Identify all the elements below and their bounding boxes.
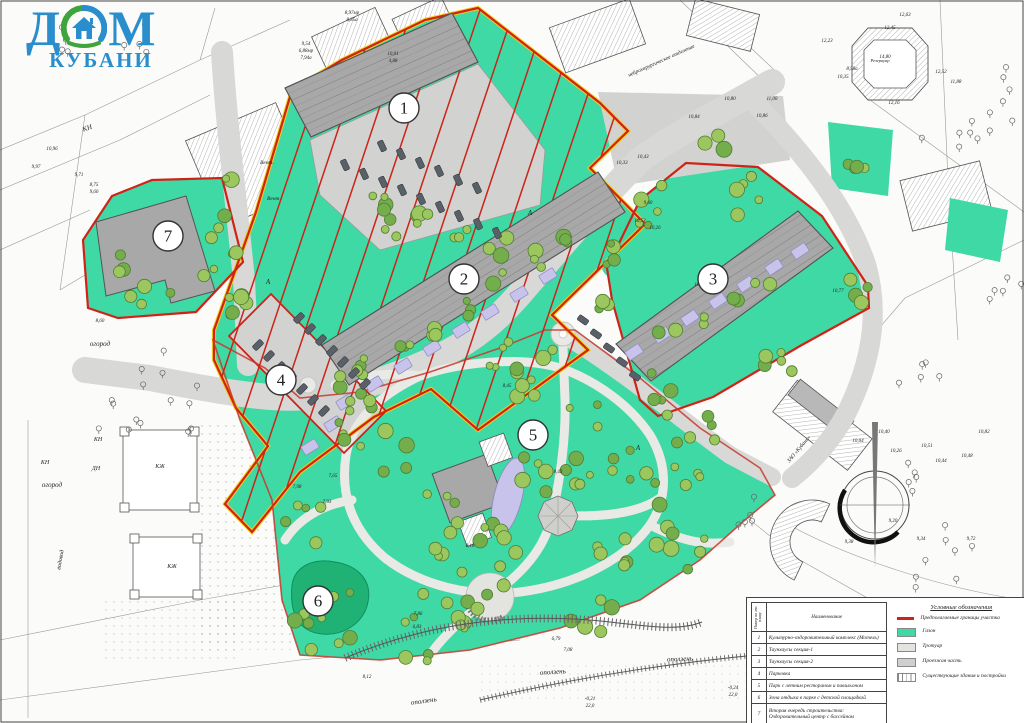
tree-icon	[214, 223, 224, 233]
tree-icon	[482, 589, 493, 600]
tree-icon	[510, 362, 524, 376]
legend-row: 1Культурно-оздоровительный комплекс (Мот…	[752, 632, 887, 644]
cadastral-tree-icon	[138, 420, 143, 428]
tree-crown	[987, 110, 992, 115]
map-label: 8,97мр	[345, 11, 360, 16]
tree-crown	[987, 296, 992, 301]
tree-crown	[952, 548, 957, 553]
row-num: 1	[752, 632, 767, 644]
cadastral-tree-icon	[969, 118, 974, 126]
tree-icon	[234, 289, 249, 304]
cadastral-tree-icon	[987, 296, 992, 304]
site-plan-page: оползеньоползеньоползеньогородогородводо…	[0, 0, 1024, 723]
tree-crown	[161, 348, 166, 353]
cadastral-tree-icon	[1000, 288, 1005, 296]
map-label: 22,0	[729, 693, 738, 698]
tree-crown	[96, 426, 101, 431]
tree-icon	[422, 209, 432, 219]
tree-icon	[652, 326, 665, 339]
legend-row: 7Вторая очередь строительства: Оздоровит…	[752, 704, 887, 723]
tree-icon	[530, 255, 538, 263]
map-label: 14,80	[879, 55, 891, 60]
row-name: Культурно-оздоровительный комплекс (Моте…	[766, 632, 887, 644]
map-label: огород	[90, 340, 111, 348]
tree-icon	[698, 136, 712, 150]
map-label: 11,00	[767, 97, 778, 102]
tree-icon	[495, 561, 506, 572]
tree-icon	[205, 232, 217, 244]
tree-icon	[710, 435, 720, 445]
tree-icon	[429, 328, 442, 341]
map-label: 9,60	[90, 190, 99, 195]
tree-icon	[418, 588, 429, 599]
tree-icon	[594, 401, 602, 409]
cadastral-tree-icon	[957, 144, 962, 152]
map-label: 7,94а	[300, 56, 312, 61]
tree-icon	[619, 533, 631, 545]
map-label: КН	[40, 460, 50, 466]
tree-icon	[604, 600, 619, 615]
tree-icon	[536, 350, 551, 365]
cadastral-tree-icon	[913, 585, 918, 593]
legend-row: 2Таунхаусы секция-1	[752, 644, 887, 656]
tree-icon	[457, 567, 467, 577]
tree-icon	[463, 297, 470, 304]
tree-icon	[594, 547, 607, 560]
cadastral-tree-icon	[910, 488, 915, 496]
zone-number: 2	[460, 270, 469, 289]
tree-crown	[975, 136, 980, 141]
tree-icon	[225, 293, 233, 301]
tree-crown	[923, 557, 928, 562]
tree-crown	[187, 401, 192, 406]
tree-icon	[700, 313, 708, 321]
tree-crown	[957, 130, 962, 135]
tree-icon	[656, 180, 667, 191]
map-label: -0,24	[728, 686, 739, 691]
cadastral-tree-icon	[913, 574, 918, 582]
tree-crown	[906, 479, 911, 484]
zone-marker-2: 2	[449, 264, 479, 294]
tree-icon	[360, 355, 367, 362]
legend-col-number: Номер по ген. плану	[754, 604, 762, 630]
cadastral-tree-icon	[943, 537, 948, 545]
map-label: 11,88	[951, 80, 962, 85]
tree-icon	[729, 182, 744, 197]
tree-icon	[493, 248, 509, 264]
tree-icon	[486, 276, 501, 291]
ne-lawn-patch	[828, 122, 893, 196]
tree-icon	[528, 389, 540, 401]
tree-icon	[652, 497, 667, 512]
tree-icon	[850, 160, 863, 173]
tree-icon	[746, 171, 756, 181]
tree-icon	[335, 371, 346, 382]
logo-dom-kubani: Д М КУБАНИ	[26, 4, 196, 73]
map-label: 9,71	[75, 173, 84, 178]
tree-icon	[333, 380, 347, 394]
tree-icon	[672, 437, 683, 448]
cadastral-tree-icon	[187, 401, 192, 409]
map-label: 12,45	[884, 26, 896, 31]
zone-number: 4	[277, 371, 286, 390]
cadastral-tree-icon	[96, 426, 101, 434]
map-label: -0,21	[585, 697, 595, 702]
row-num: 5	[752, 680, 767, 692]
tree-icon	[378, 423, 393, 438]
map-label: 8,58а	[846, 67, 858, 72]
tree-icon	[647, 369, 656, 378]
map-label: 10,04	[852, 439, 864, 444]
tree-icon	[701, 535, 708, 542]
map-label: 6,88мр	[299, 49, 314, 54]
map-label: ДН	[91, 466, 101, 472]
tree-crown	[1003, 65, 1008, 70]
cadastral-tree-icon	[168, 398, 173, 406]
map-label: 10,26	[890, 449, 902, 454]
tree-icon	[680, 479, 691, 490]
map-label: 9,60	[644, 201, 653, 206]
cadastral-tree-icon	[987, 110, 992, 118]
tree-crown	[134, 417, 139, 422]
map-label: 10,26	[649, 226, 661, 231]
tree-icon	[777, 348, 785, 356]
tree-icon	[114, 266, 126, 278]
tree-icon	[596, 294, 610, 308]
tree-icon	[626, 446, 634, 454]
legend-symbol-existing: Существующие здания и постройки	[897, 673, 1024, 682]
map-label: 10,82	[978, 430, 990, 435]
tree-icon	[777, 357, 786, 366]
legend-row: 4Парковка	[752, 668, 887, 680]
tree-crown	[749, 518, 754, 523]
tree-icon	[595, 625, 607, 637]
tree-icon	[222, 175, 229, 182]
cadastral-tree-icon	[906, 460, 911, 468]
tree-crown	[1010, 118, 1015, 123]
tree-icon	[499, 344, 506, 351]
tree-icon	[651, 478, 660, 487]
tree-crown	[918, 374, 923, 379]
map-label: 7,93	[323, 500, 332, 505]
tree-icon	[137, 299, 147, 309]
tree-icon	[607, 240, 614, 247]
tree-icon	[463, 226, 471, 234]
cadastral-tree-icon	[1007, 87, 1012, 95]
tree-crown	[913, 585, 918, 590]
zone-number: 1	[400, 99, 409, 118]
tree-icon	[343, 630, 358, 645]
logo-letter-d: Д	[26, 4, 60, 52]
tree-icon	[844, 273, 857, 286]
row-num: 7	[752, 704, 767, 723]
map-label: оползень	[410, 695, 437, 707]
row-name: Таунхаусы секция-2	[766, 656, 887, 668]
tree-icon	[305, 643, 317, 655]
tree-icon	[381, 226, 389, 234]
tree-icon	[509, 546, 523, 560]
map-label: 10,48	[961, 454, 973, 459]
symbol-label: Предполагаемые границы участка	[920, 616, 999, 622]
tree-icon	[593, 422, 602, 431]
map-label: 10,51	[921, 444, 932, 449]
tree-crown	[937, 374, 942, 379]
tree-crown	[987, 128, 992, 133]
tree-icon	[619, 560, 630, 571]
tree-icon	[654, 208, 662, 216]
map-label: 12,16	[888, 101, 900, 106]
tree-icon	[471, 602, 484, 615]
tree-icon	[786, 366, 797, 377]
tree-icon	[226, 306, 240, 320]
symbol-label: Проезжая часть	[922, 659, 961, 665]
row-num: 4	[752, 668, 767, 680]
tree-icon	[497, 579, 510, 592]
cadastral-tree-icon	[969, 543, 974, 551]
tree-crown	[111, 401, 116, 406]
map-label: 8,75	[90, 183, 99, 188]
map-label: 9,72	[967, 537, 976, 542]
legend-table: Номер по ген. плану Наименование 1Культу…	[751, 602, 887, 723]
cadastral-tree-icon	[896, 380, 901, 388]
legend-symbols-title: Условные обозначения	[897, 604, 1024, 611]
row-name: Парк с летним рестораном и павильоном	[766, 680, 887, 692]
map-label: 10,53	[634, 219, 646, 224]
tree-icon	[413, 219, 421, 227]
zone-marker-4: 4	[266, 365, 296, 395]
tree-icon	[515, 379, 529, 393]
car-icon	[577, 314, 589, 325]
map-label: Вент.	[267, 196, 281, 202]
tree-icon	[499, 269, 507, 277]
tree-icon	[586, 471, 593, 478]
cadastral-tree-icon	[968, 130, 973, 138]
legend-row: 5Парк с летним рестораном и павильоном	[752, 680, 887, 692]
tree-icon	[539, 464, 554, 479]
tree-icon	[229, 246, 243, 260]
tree-icon	[640, 467, 653, 480]
tree-icon	[345, 396, 355, 406]
map-label: 10,40	[878, 430, 890, 435]
tree-icon	[716, 141, 732, 157]
map-label: 10,77	[832, 289, 844, 294]
tree-icon	[763, 278, 776, 291]
zone-marker-7: 7	[153, 221, 183, 251]
tree-icon	[566, 404, 573, 411]
tree-icon	[683, 564, 693, 574]
tree-crown	[1001, 75, 1006, 80]
legend-panel: Номер по ген. плану Наименование 1Культу…	[746, 597, 1024, 723]
tree-crown	[954, 576, 959, 581]
cadastral-tree-icon	[952, 548, 957, 556]
tree-icon	[596, 595, 606, 605]
tree-icon	[755, 196, 763, 204]
tree-icon	[608, 254, 620, 266]
tree-icon	[608, 453, 619, 464]
tree-icon	[198, 270, 210, 282]
tree-icon	[486, 362, 493, 369]
tree-icon	[137, 279, 151, 293]
cadastral-tree-icon	[1010, 118, 1015, 126]
zone-number: 5	[529, 426, 538, 445]
map-label: 9,20	[889, 519, 898, 524]
tree-icon	[346, 589, 354, 597]
map-label: 7,86	[414, 612, 423, 617]
map-label: КЖ	[154, 464, 165, 470]
map-label: 10,43	[637, 155, 649, 160]
tree-icon	[702, 410, 714, 422]
tree-icon	[356, 388, 367, 399]
legend-row: 6Зона отдыха в парке с детской площадкой	[752, 692, 887, 704]
map-label: А	[265, 278, 271, 286]
tree-icon	[518, 452, 529, 463]
tree-crown	[992, 288, 997, 293]
tree-icon	[664, 384, 678, 398]
zone-marker-6: 6	[303, 586, 333, 616]
cadastral-tree-icon	[987, 128, 992, 136]
tree-icon	[497, 531, 511, 545]
tree-icon	[125, 290, 137, 302]
map-label: 6,79	[552, 637, 561, 642]
tree-icon	[454, 233, 463, 242]
map-label: оползень	[667, 655, 693, 664]
cadastral-tree-icon	[919, 135, 924, 143]
tree-crown	[957, 144, 962, 149]
tree-icon	[210, 265, 218, 273]
zone-marker-3: 3	[698, 264, 728, 294]
zone-number: 3	[709, 270, 718, 289]
tree-icon	[649, 537, 664, 552]
tree-icon	[166, 288, 175, 297]
logo-letter-m: М	[108, 4, 155, 52]
tree-icon	[281, 517, 291, 527]
map-label: 6,83	[413, 625, 422, 630]
tree-crown	[910, 488, 915, 493]
cadastral-tree-icon	[1003, 65, 1008, 73]
tree-icon	[684, 432, 695, 443]
symbol-label: Тротуар	[922, 644, 942, 650]
tree-icon	[357, 442, 365, 450]
tree-icon	[759, 349, 773, 363]
cadastral-tree-icon	[918, 374, 923, 382]
tree-crown	[896, 380, 901, 385]
tree-icon	[648, 393, 660, 405]
map-label: А	[527, 209, 533, 217]
roadway-swatch	[897, 658, 916, 667]
map-label: 9,97	[32, 165, 41, 170]
tree-crown	[943, 537, 948, 542]
map-label: 9,38	[845, 540, 854, 545]
tree-crown	[969, 118, 974, 123]
map-label: 8,45	[503, 384, 512, 389]
cadastral-tree-icon	[975, 136, 980, 144]
cadastral-tree-icon	[943, 523, 948, 531]
tree-icon	[423, 657, 431, 665]
map-label: 10,86	[756, 114, 768, 119]
map-label: 22,0	[586, 704, 595, 709]
cadastral-tree-icon	[749, 518, 754, 526]
tree-icon	[346, 407, 354, 415]
tree-icon	[515, 472, 531, 488]
cadastral-tree-icon	[957, 130, 962, 138]
tree-crown	[168, 398, 173, 403]
tree-icon	[854, 295, 868, 309]
tree-icon	[310, 537, 322, 549]
map-label: 8,85а	[346, 18, 358, 23]
lawn-swatch	[897, 628, 916, 637]
legend-symbol-boundary: Предполагаемые границы участка	[897, 616, 1024, 622]
cadastral-tree-icon	[923, 360, 928, 368]
tree-icon	[401, 462, 412, 473]
existing-buildings-swatch	[897, 673, 916, 682]
symbol-label: Существующие здания и постройки	[922, 674, 1006, 680]
tree-icon	[392, 232, 401, 241]
tree-icon	[463, 310, 474, 321]
tree-icon	[429, 542, 442, 555]
tree-crown	[969, 543, 974, 548]
tree-icon	[302, 504, 310, 512]
tree-icon	[450, 498, 460, 508]
tree-icon	[663, 541, 679, 557]
tree-icon	[569, 451, 584, 466]
tree-crown	[109, 398, 114, 403]
tree-icon	[671, 463, 679, 471]
tree-icon	[443, 492, 451, 500]
cadastral-tree-icon	[1001, 75, 1006, 83]
tree-icon	[712, 129, 725, 142]
legend-symbol-roadway: Проезжая часть	[897, 658, 1024, 667]
tree-crown	[1007, 87, 1012, 92]
tree-icon	[669, 323, 683, 337]
zone-marker-1: 1	[389, 93, 419, 123]
tree-icon	[399, 437, 415, 453]
tree-icon	[731, 208, 745, 222]
tree-icon	[115, 250, 125, 260]
zone-number: 6	[314, 592, 323, 611]
tree-icon	[441, 597, 453, 609]
cadastral-tree-icon	[923, 557, 928, 565]
map-label: КН	[93, 437, 103, 443]
tree-icon	[444, 526, 457, 539]
tree-crown	[943, 523, 948, 528]
tree-icon	[751, 278, 760, 287]
cadastral-tree-icon	[937, 374, 942, 382]
cadastral-tree-icon	[161, 348, 166, 356]
tree-icon	[369, 192, 377, 200]
tree-icon	[481, 524, 489, 532]
map-label: 7,98	[293, 485, 302, 490]
map-label: 10,01	[387, 52, 398, 57]
map-label: нейрохирургическое отделение	[627, 42, 696, 78]
cadastral-tree-icon	[1000, 99, 1005, 107]
tree-icon	[626, 475, 634, 483]
tree-crown	[968, 130, 973, 135]
cadastral-tree-icon	[920, 362, 925, 370]
east-lawn-patch	[945, 198, 1008, 262]
tree-icon	[540, 486, 552, 498]
row-name: Парковка	[766, 668, 887, 680]
zone-number: 7	[164, 227, 173, 246]
tree-crown	[906, 460, 911, 465]
tree-icon	[863, 282, 872, 291]
map-label: 7,65	[329, 474, 338, 479]
legend-symbols: Условные обозначения Предполагаемые гран…	[897, 604, 1024, 723]
tree-icon	[727, 292, 740, 305]
map-label: 10,44	[935, 459, 947, 464]
map-label: КЖ	[166, 564, 177, 570]
tree-icon	[608, 466, 618, 476]
map-label: 9,54	[302, 42, 311, 47]
